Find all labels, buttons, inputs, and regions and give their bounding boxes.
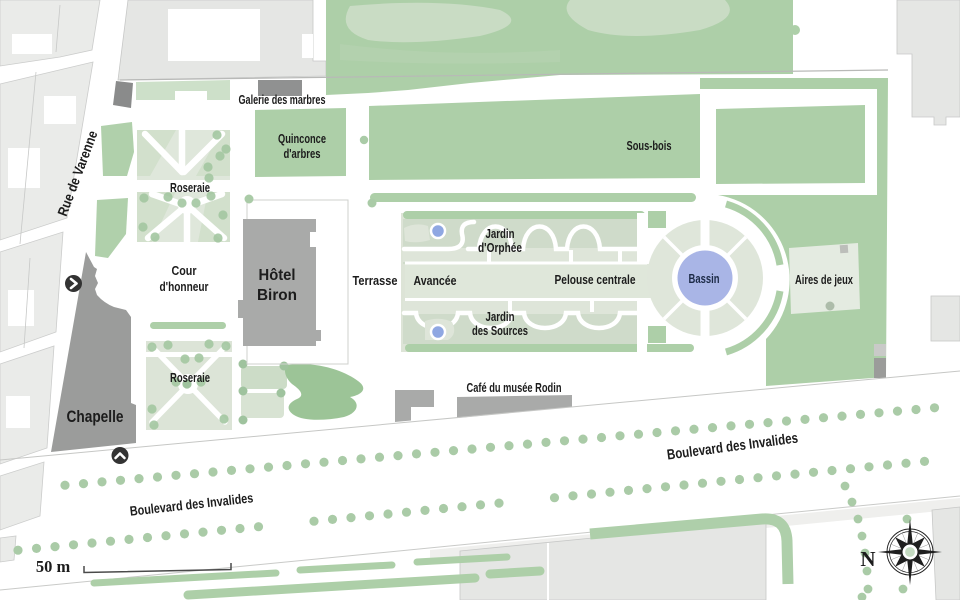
svg-text:Cour: Cour [172,264,197,278]
svg-text:Roseraie: Roseraie [170,371,210,385]
svg-text:Aires de jeux: Aires de jeux [795,273,853,287]
svg-text:Pelouse centrale: Pelouse centrale [555,273,636,287]
svg-text:Avancée: Avancée [414,274,457,288]
svg-text:50 m: 50 m [36,557,71,576]
svg-text:d'arbres: d'arbres [284,147,321,161]
svg-text:Chapelle: Chapelle [67,408,124,426]
svg-text:Bassin: Bassin [689,272,720,286]
svg-text:Jardin: Jardin [486,227,515,241]
svg-text:Galerie des marbres: Galerie des marbres [239,92,326,107]
svg-text:Biron: Biron [257,287,297,304]
svg-text:Jardin: Jardin [486,310,515,324]
svg-text:d'honneur: d'honneur [160,280,209,294]
svg-text:Roseraie: Roseraie [170,181,210,195]
svg-text:d'Orphée: d'Orphée [478,241,522,255]
svg-text:Café du musée Rodin: Café du musée Rodin [467,380,562,395]
svg-text:Sous-bois: Sous-bois [627,139,672,153]
svg-text:N: N [860,547,875,571]
svg-text:Hôtel: Hôtel [259,267,296,284]
svg-text:Terrasse: Terrasse [353,274,398,288]
svg-text:des Sources: des Sources [472,324,528,338]
svg-text:Quinconce: Quinconce [278,132,326,146]
